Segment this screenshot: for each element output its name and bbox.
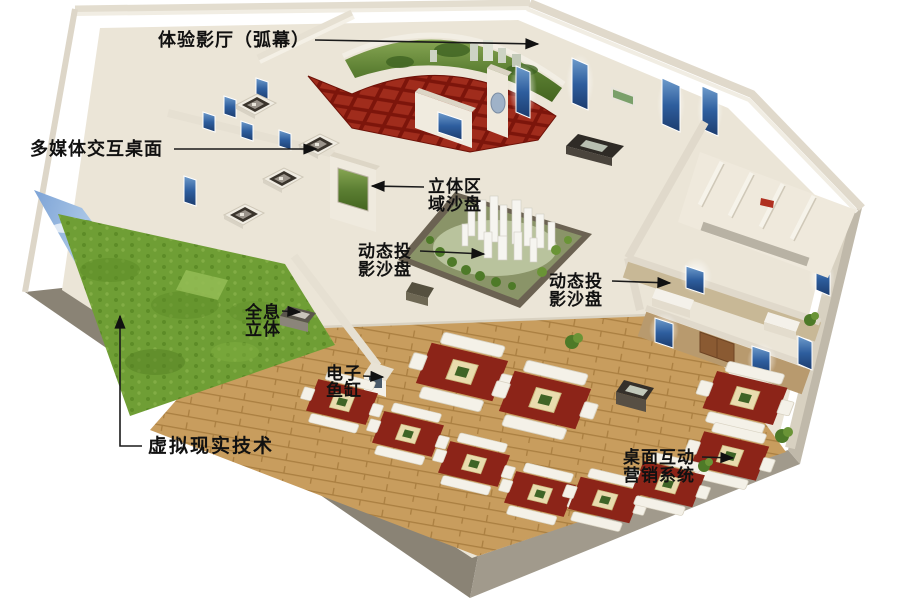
label-hologram-line2: 立体: [245, 319, 281, 340]
wall-picture: [203, 112, 215, 132]
projection-panel: [572, 58, 588, 110]
label-line: [363, 376, 383, 377]
projection-panel: [798, 336, 812, 370]
hall-scene: 体验影厅（弧幕） 多媒体交互桌面 立体区 域沙盘 动态投 影沙盘 动态投 影沙盘…: [0, 0, 900, 600]
wall-picture: [279, 130, 291, 150]
projection-panel: [662, 78, 680, 132]
label-dynamic-right-line1: 动态投: [549, 271, 603, 292]
label-line: [282, 311, 300, 312]
label-line: [372, 186, 424, 187]
label-dynamic-right-line2: 影沙盘: [549, 289, 603, 310]
exhibition-hall-rendering: 体验影厅（弧幕） 多媒体交互桌面 立体区 域沙盘 动态投 影沙盘 动态投 影沙盘…: [0, 0, 900, 600]
wall-picture: [224, 96, 236, 118]
label-multimedia-text: 多媒体交互桌面: [30, 138, 163, 160]
wall-picture: [184, 176, 196, 206]
label-marketing-line2: 营销系统: [623, 465, 695, 486]
label-dynamic-center-line2: 影沙盘: [358, 259, 412, 280]
projection-panel: [516, 66, 530, 118]
oval-display: [491, 93, 505, 113]
label-line: [702, 457, 733, 458]
label-dynamic-center-line1: 动态投: [358, 241, 412, 262]
label-theater-text: 体验影厅（弧幕）: [158, 29, 310, 51]
stereo-zone-screen-wall: [330, 152, 380, 232]
label-stereo-zone-line2: 域沙盘: [428, 194, 482, 215]
label-vr-text: 虚拟现实技术: [148, 434, 274, 457]
label-fishtank-line2: 鱼缸: [326, 380, 362, 401]
wall-picture: [241, 121, 253, 141]
label-marketing-line1: 桌面互动: [623, 448, 695, 468]
label-stereo-zone-line1: 立体区: [428, 176, 482, 197]
